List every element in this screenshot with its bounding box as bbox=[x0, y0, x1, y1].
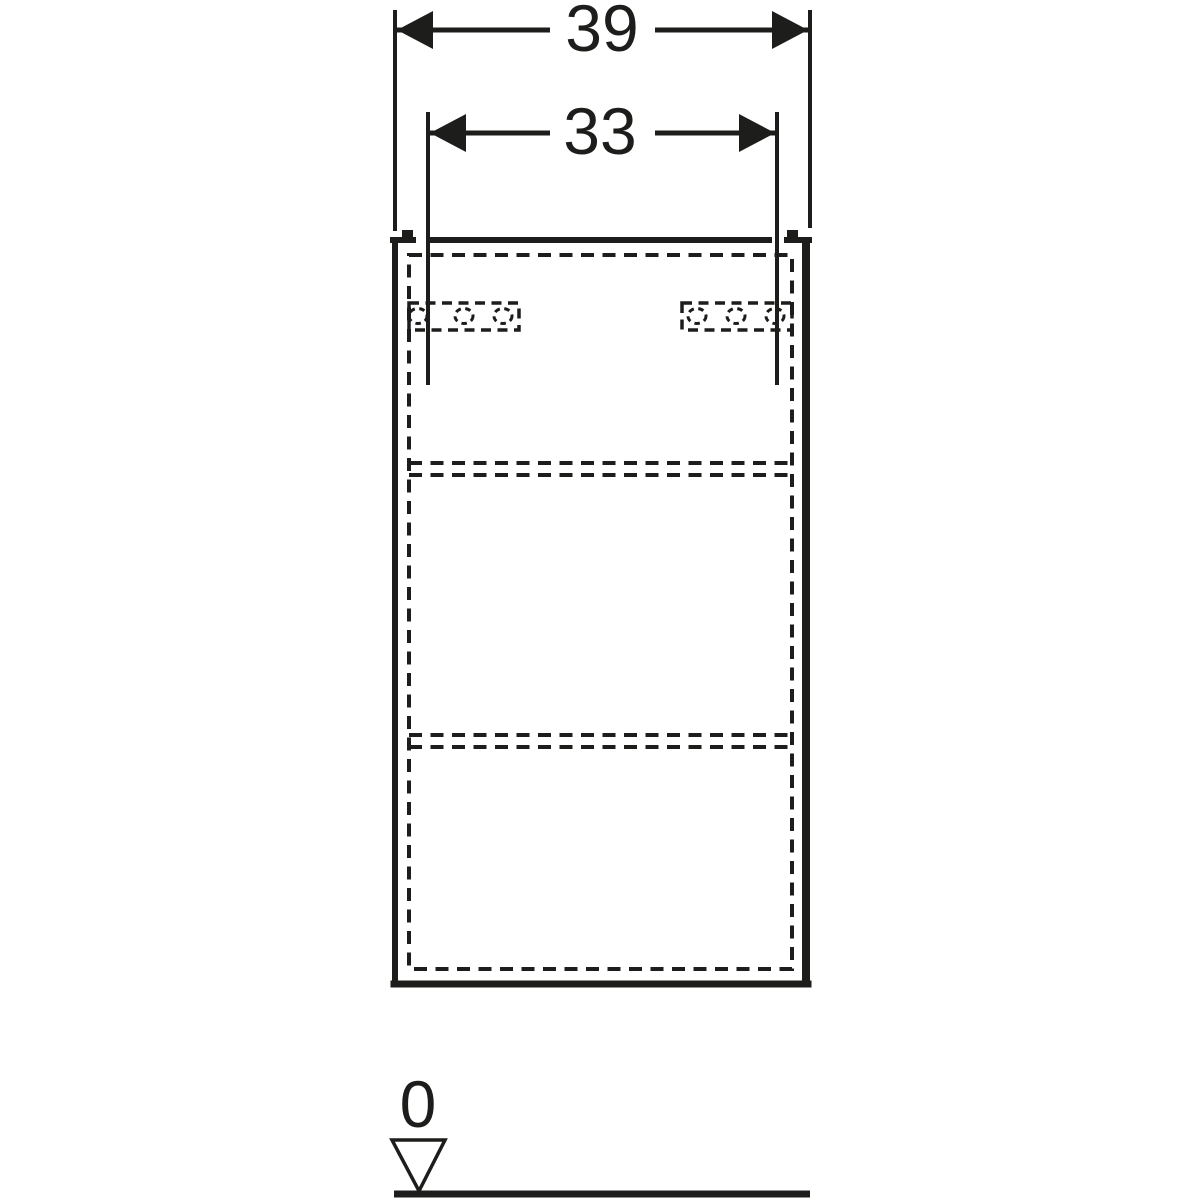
dimension-label-outer-width: 39 bbox=[565, 0, 638, 65]
technical-drawing-canvas: 39 33 bbox=[0, 0, 1200, 1200]
datum-zero-label: 0 bbox=[400, 1067, 437, 1141]
bracket-slot-hole bbox=[688, 309, 706, 324]
bracket-slot-hole bbox=[727, 309, 745, 324]
back-panel-outline-dashed bbox=[409, 255, 792, 969]
dimension-label-bracket-spacing: 33 bbox=[563, 94, 636, 168]
mounting-bracket-left bbox=[409, 303, 519, 330]
bracket-slot-hole bbox=[409, 309, 427, 324]
arrowhead-right-icon bbox=[772, 11, 808, 49]
arrowhead-right-icon bbox=[739, 114, 775, 152]
arrowhead-left-icon bbox=[397, 11, 433, 49]
cabinet-dimension-drawing: 39 33 bbox=[0, 0, 1200, 1200]
datum-triangle-icon bbox=[392, 1140, 445, 1191]
cabinet-outline bbox=[393, 230, 809, 984]
arrowhead-left-icon bbox=[430, 114, 466, 152]
bracket-slot-hole bbox=[455, 309, 473, 324]
cabinet-hidden-lines bbox=[409, 255, 792, 969]
cabinet-top-left-tab-bump bbox=[402, 230, 413, 238]
cabinet-top-right-tab-bump bbox=[787, 230, 798, 238]
bracket-slot-hole bbox=[494, 309, 512, 324]
floor-datum: 0 bbox=[392, 1067, 810, 1194]
